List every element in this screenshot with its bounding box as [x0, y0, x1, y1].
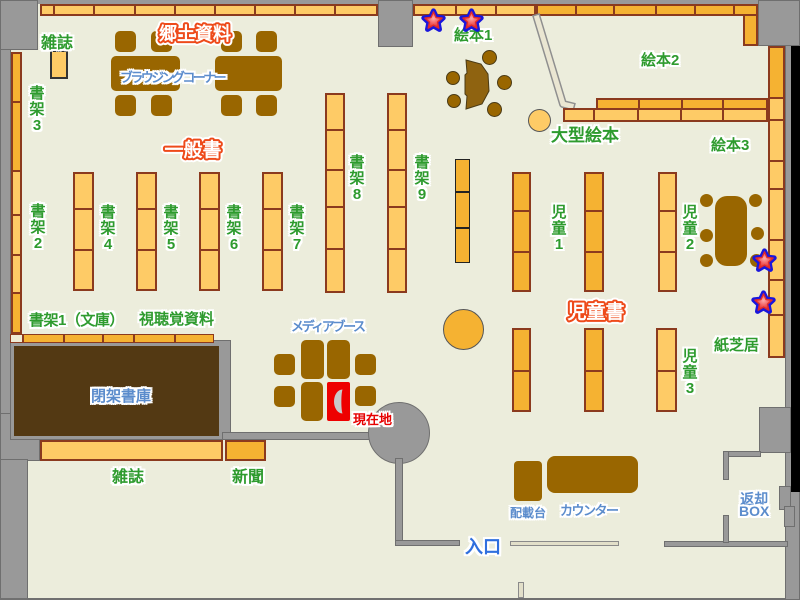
svg-text:郷土資料: 郷土資料	[159, 23, 231, 44]
svg-text:児童書: 児童書	[566, 300, 624, 323]
svg-text:一般書: 一般書	[164, 138, 221, 161]
